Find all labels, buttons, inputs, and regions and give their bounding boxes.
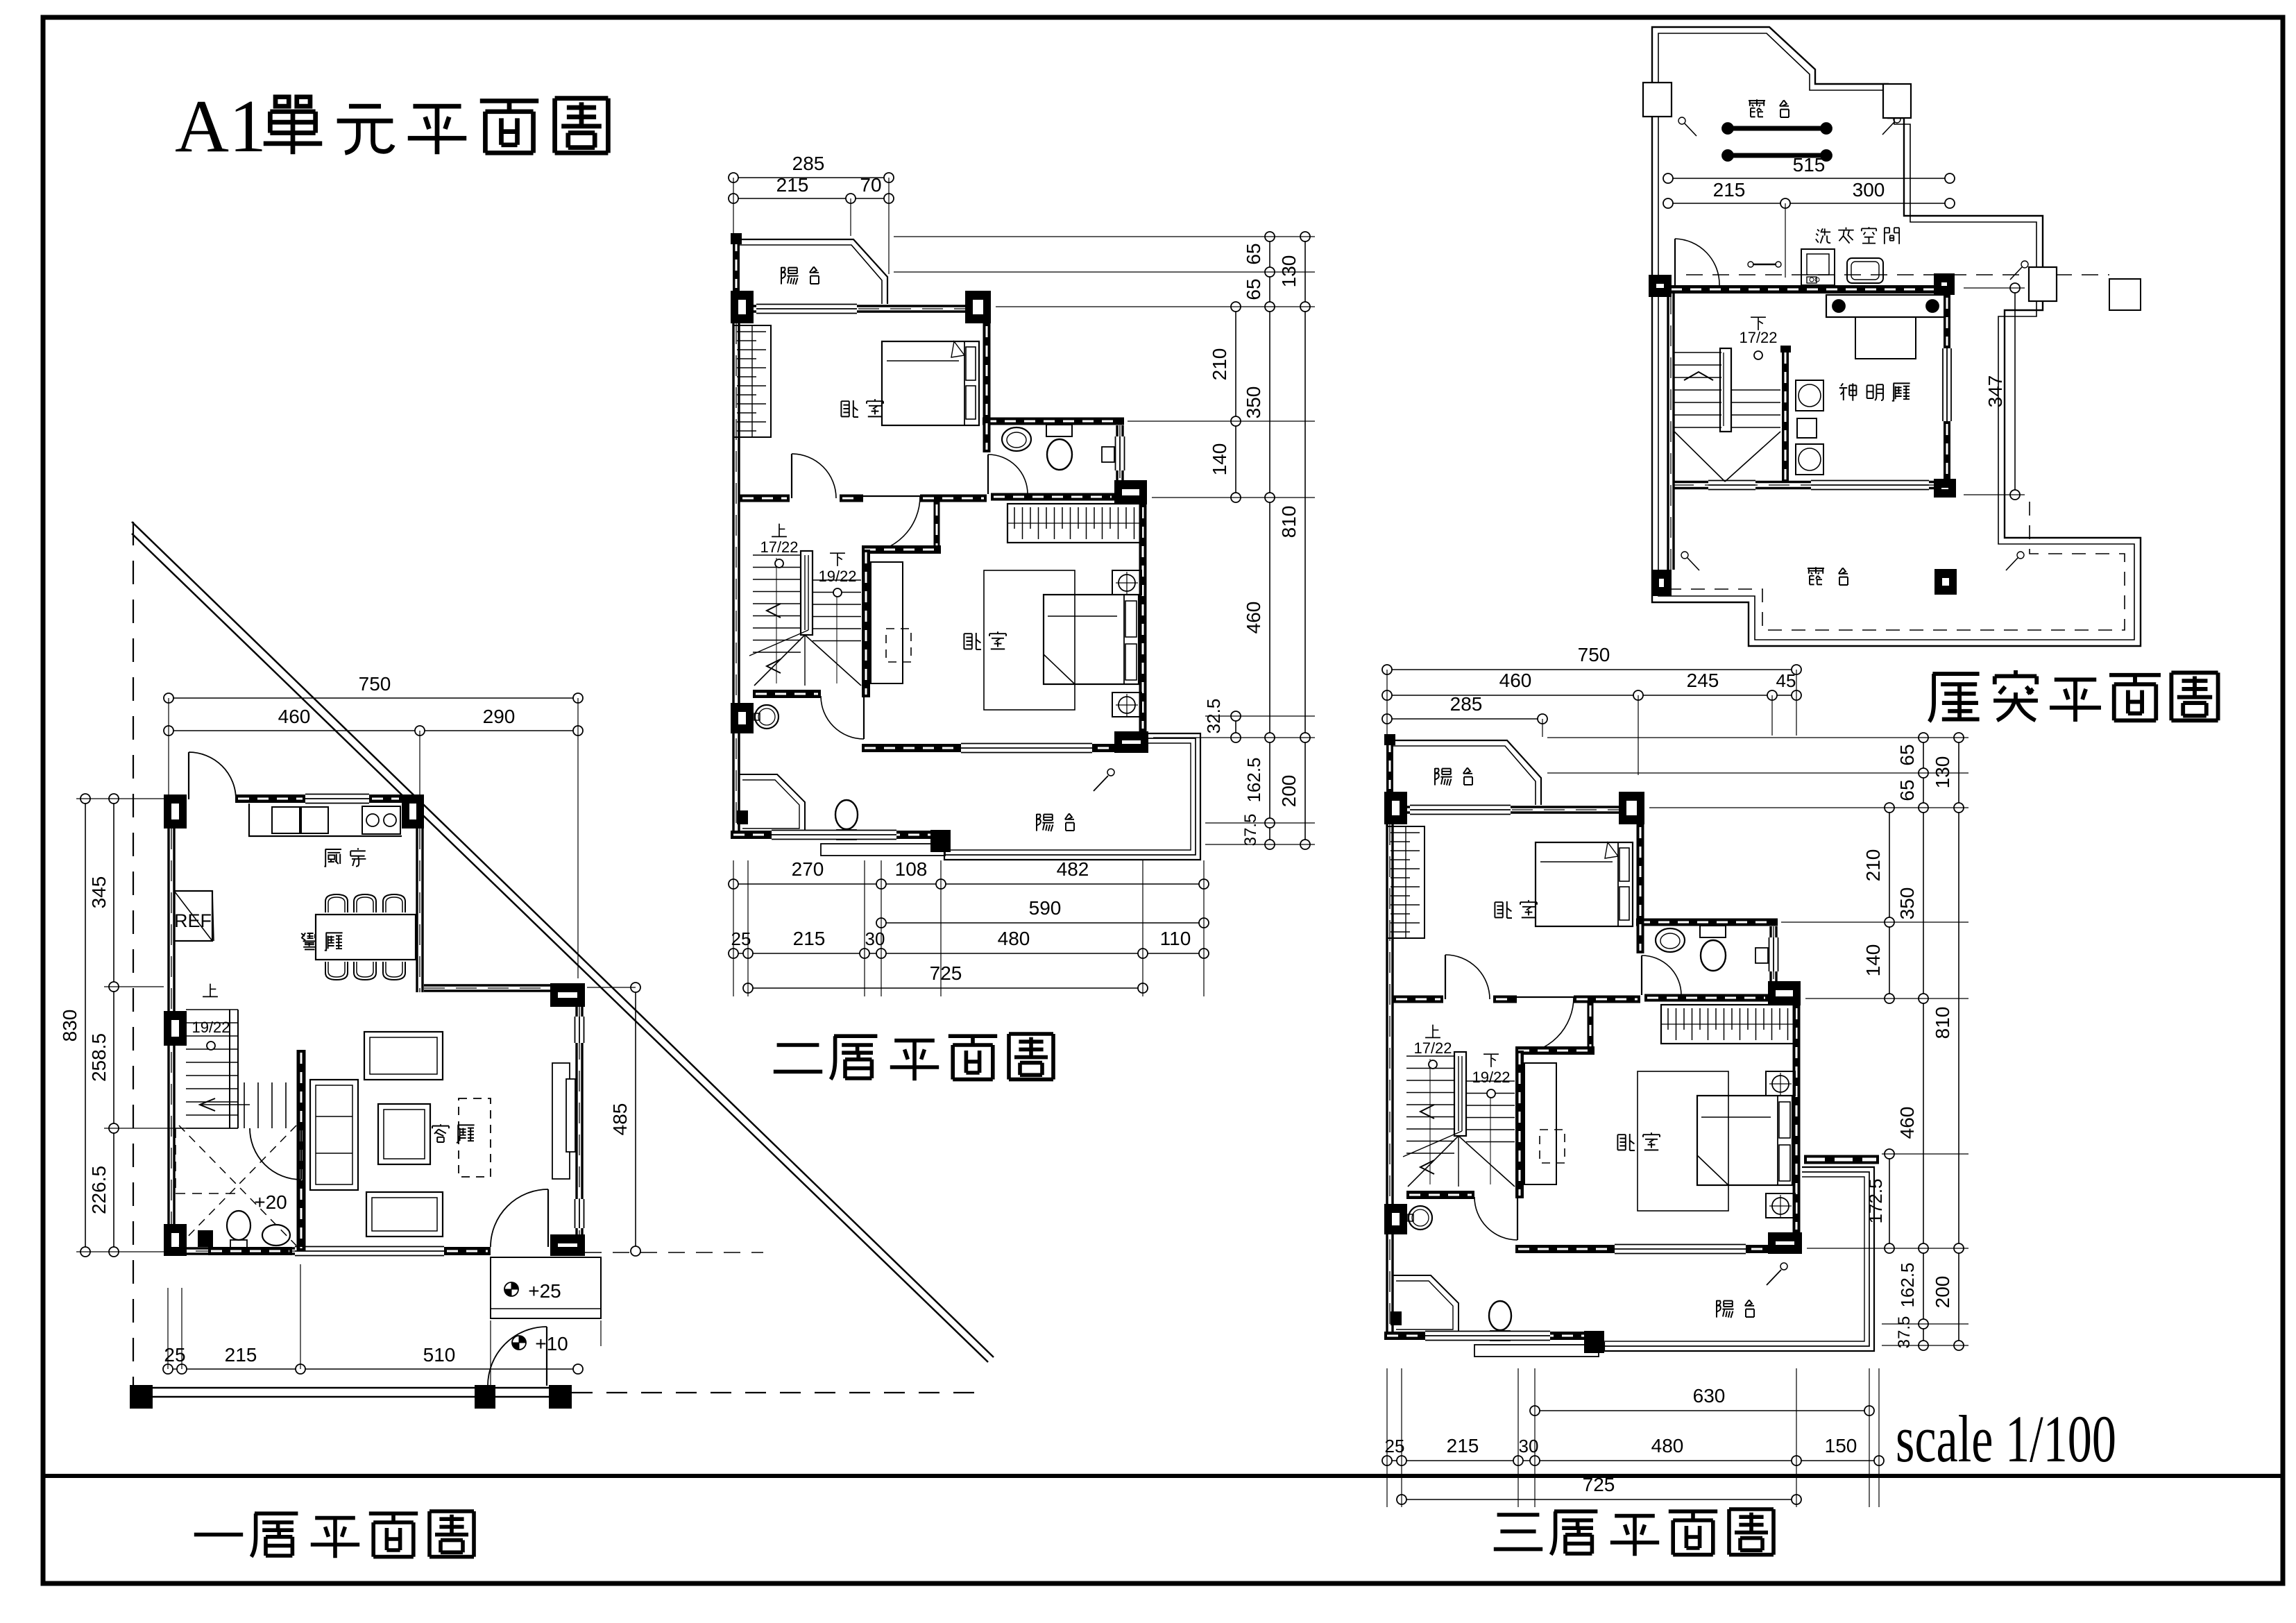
svg-text:215: 215 xyxy=(793,928,826,949)
svg-text:162.5: 162.5 xyxy=(1243,757,1264,802)
svg-text:270: 270 xyxy=(792,858,824,880)
svg-text:347: 347 xyxy=(1984,375,2006,408)
svg-text:480: 480 xyxy=(1651,1435,1684,1456)
svg-text:25: 25 xyxy=(164,1344,185,1366)
svg-text:300: 300 xyxy=(1853,179,1885,201)
svg-text:108: 108 xyxy=(895,858,928,880)
svg-text:510: 510 xyxy=(423,1344,456,1366)
svg-text:810: 810 xyxy=(1932,1007,1953,1039)
svg-text:285: 285 xyxy=(1450,693,1483,715)
svg-text:210: 210 xyxy=(1862,849,1884,882)
svg-text:17/22: 17/22 xyxy=(760,538,798,556)
svg-text:460: 460 xyxy=(1499,670,1532,691)
svg-text:150: 150 xyxy=(1825,1435,1857,1456)
svg-text:65: 65 xyxy=(1243,243,1264,264)
svg-text:19/22: 19/22 xyxy=(818,568,856,585)
svg-text:130: 130 xyxy=(1278,255,1300,288)
svg-text:290: 290 xyxy=(483,706,516,727)
svg-text:285: 285 xyxy=(792,153,825,174)
svg-text:REF: REF xyxy=(174,910,212,931)
svg-text:810: 810 xyxy=(1278,506,1300,538)
svg-text:830: 830 xyxy=(59,1010,80,1042)
svg-text:350: 350 xyxy=(1896,887,1918,920)
svg-text:725: 725 xyxy=(930,962,962,984)
svg-text:65: 65 xyxy=(1896,779,1918,801)
svg-text:30: 30 xyxy=(1519,1436,1539,1456)
svg-text:scale 1/100: scale 1/100 xyxy=(1896,1402,2116,1476)
svg-text:215: 215 xyxy=(1447,1435,1479,1456)
svg-text:460: 460 xyxy=(278,706,311,727)
svg-text:45: 45 xyxy=(1776,670,1796,691)
svg-text:19/22: 19/22 xyxy=(192,1019,230,1036)
svg-text:162.5: 162.5 xyxy=(1897,1262,1918,1307)
svg-text:590: 590 xyxy=(1029,897,1062,919)
svg-text:65: 65 xyxy=(1896,744,1918,765)
svg-text:215: 215 xyxy=(776,174,809,196)
svg-text:480: 480 xyxy=(998,928,1030,949)
svg-text:110: 110 xyxy=(1160,928,1191,949)
svg-text:750: 750 xyxy=(359,673,391,695)
svg-text:172.5: 172.5 xyxy=(1865,1178,1886,1223)
svg-text:215: 215 xyxy=(225,1344,257,1366)
svg-text:725: 725 xyxy=(1583,1474,1615,1495)
svg-text:226.5: 226.5 xyxy=(88,1166,110,1214)
svg-text:70: 70 xyxy=(860,174,881,196)
svg-text:200: 200 xyxy=(1932,1276,1953,1309)
svg-text:+20: +20 xyxy=(254,1191,287,1213)
svg-text:200: 200 xyxy=(1278,775,1300,808)
svg-text:482: 482 xyxy=(1057,858,1089,880)
svg-text:130: 130 xyxy=(1932,756,1953,789)
svg-text:345: 345 xyxy=(88,876,110,909)
svg-text:17/22: 17/22 xyxy=(1739,329,1777,346)
svg-text:245: 245 xyxy=(1687,670,1719,691)
svg-text:460: 460 xyxy=(1243,602,1264,634)
svg-text:37.5: 37.5 xyxy=(1895,1316,1914,1349)
svg-text:460: 460 xyxy=(1896,1107,1918,1139)
svg-text:140: 140 xyxy=(1209,443,1230,476)
svg-text:37.5: 37.5 xyxy=(1241,814,1260,847)
svg-text:215: 215 xyxy=(1713,179,1746,201)
svg-text:350: 350 xyxy=(1243,386,1264,419)
svg-text:750: 750 xyxy=(1578,644,1610,665)
svg-text:210: 210 xyxy=(1209,348,1230,381)
svg-text:65: 65 xyxy=(1243,278,1264,300)
svg-text:140: 140 xyxy=(1862,944,1884,977)
svg-text:630: 630 xyxy=(1693,1385,1726,1407)
svg-text:515: 515 xyxy=(1793,154,1826,176)
svg-text:A1: A1 xyxy=(175,85,266,168)
svg-text:+25: +25 xyxy=(528,1280,561,1302)
svg-text:+10: +10 xyxy=(535,1333,568,1354)
svg-text:485: 485 xyxy=(609,1103,631,1136)
svg-text:258.5: 258.5 xyxy=(88,1033,110,1082)
svg-text:30: 30 xyxy=(865,928,885,949)
